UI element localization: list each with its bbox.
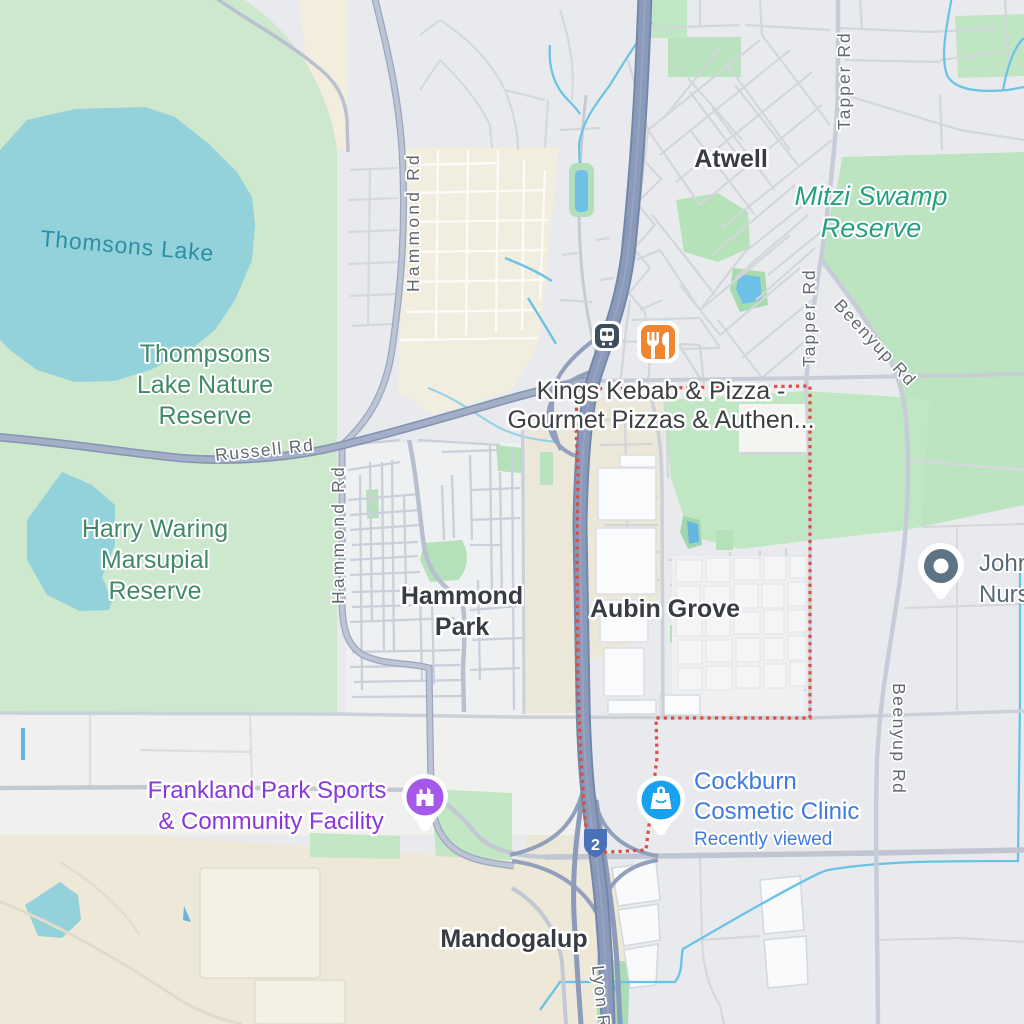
svg-text:Hammond Rd: Hammond Rd [328, 464, 348, 604]
svg-text:Frankland Park Sports: Frankland Park Sports [148, 777, 387, 804]
svg-text:Hammond: Hammond [401, 582, 523, 610]
svg-text:Thompsons: Thompsons [140, 340, 271, 368]
svg-text:Marsupial: Marsupial [101, 546, 209, 574]
svg-text:Tapper Rd: Tapper Rd [834, 31, 854, 130]
svg-text:Lake Nature: Lake Nature [137, 371, 273, 399]
svg-text:Mitzi Swamp: Mitzi Swamp [794, 181, 947, 211]
svg-text:Harry Waring: Harry Waring [82, 515, 228, 543]
svg-text:Recently viewed: Recently viewed [694, 829, 832, 850]
svg-text:Beenyup Rd: Beenyup Rd [889, 683, 909, 794]
svg-text:2: 2 [591, 837, 600, 854]
svg-text:Atwell: Atwell [694, 145, 768, 173]
svg-text:Kings Kebab & Pizza -: Kings Kebab & Pizza - [537, 377, 786, 405]
svg-text:Cosmetic Clinic: Cosmetic Clinic [694, 798, 859, 825]
svg-text:Aubin Grove: Aubin Grove [590, 595, 740, 623]
svg-text:Cockburn: Cockburn [694, 768, 797, 795]
svg-text:& Community Facility: & Community Facility [158, 808, 383, 835]
svg-text:Park: Park [435, 613, 489, 641]
svg-text:Reserve: Reserve [108, 577, 201, 605]
svg-text:John: John [979, 550, 1024, 577]
svg-text:Reserve: Reserve [158, 402, 251, 430]
svg-text:Reserve: Reserve [821, 213, 922, 243]
svg-text:Gourmet Pizzas & Authen...: Gourmet Pizzas & Authen... [507, 406, 814, 434]
svg-text:Hammond Rd: Hammond Rd [403, 152, 423, 292]
svg-text:Nurse: Nurse [979, 581, 1024, 608]
svg-text:Mandogalup: Mandogalup [440, 925, 587, 953]
svg-text:Tapper Rd: Tapper Rd [799, 268, 819, 367]
